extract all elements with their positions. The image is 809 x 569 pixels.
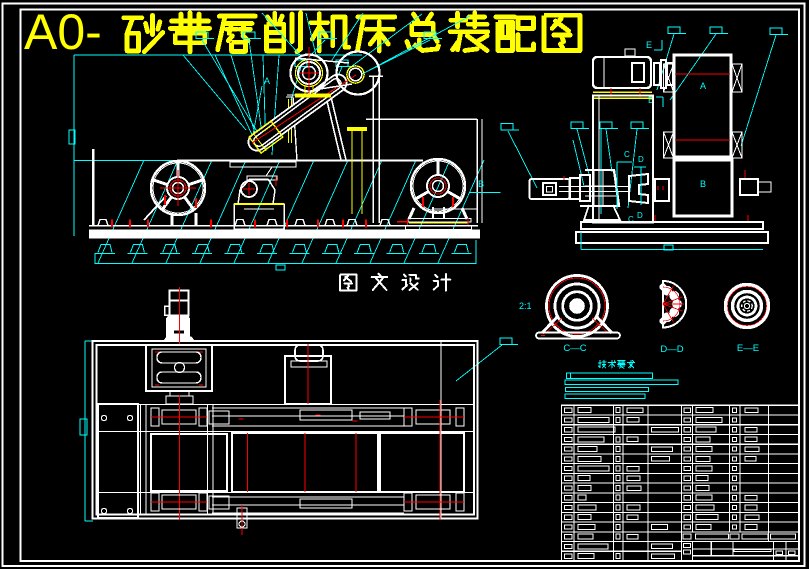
svg-text:D: D: [638, 155, 644, 164]
svg-text:A0-: A0-: [24, 4, 102, 60]
svg-text:A: A: [700, 81, 706, 91]
svg-text:E—E: E—E: [737, 343, 759, 354]
svg-text:B: B: [478, 179, 484, 189]
svg-text:D—D: D—D: [660, 344, 683, 355]
svg-text:E: E: [646, 40, 652, 50]
svg-text:C—C: C—C: [563, 343, 586, 354]
svg-text:B: B: [700, 179, 706, 189]
svg-text:A: A: [264, 76, 270, 86]
svg-text:2:1: 2:1: [519, 301, 532, 311]
svg-text:C: C: [624, 150, 630, 159]
svg-text:D: D: [637, 211, 643, 220]
